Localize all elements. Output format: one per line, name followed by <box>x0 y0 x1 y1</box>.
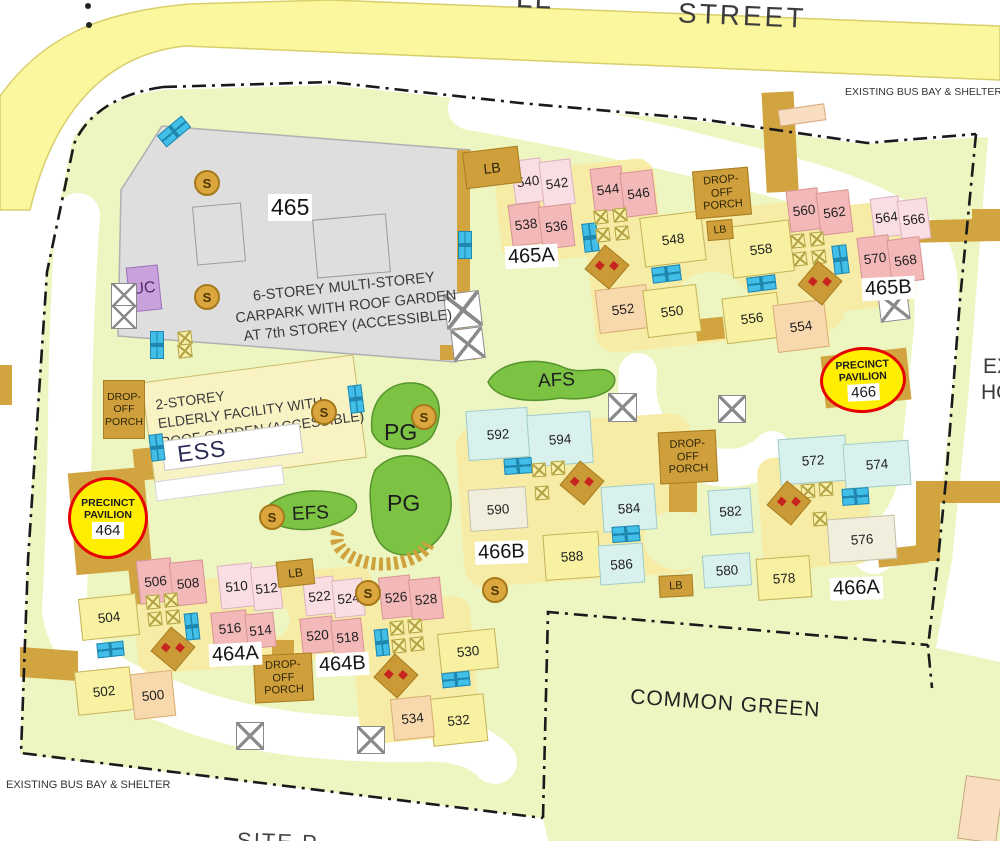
afs-label: AFS <box>537 369 575 393</box>
crossing-marker <box>236 722 264 750</box>
survey-dot <box>86 22 92 28</box>
letterbox-466b: LB <box>658 574 693 598</box>
site-plan-title-fragment: SITE P <box>237 828 320 841</box>
stair-box <box>595 227 611 243</box>
survey-dot <box>85 3 91 9</box>
stair-box <box>409 636 424 651</box>
stair-box <box>389 620 404 635</box>
lift-lobby <box>503 457 532 475</box>
block-554: 554 <box>772 299 829 353</box>
existing-housing-fragment-1: EX <box>983 355 1000 379</box>
pavilion-464-number: 464 <box>92 522 123 539</box>
stair-box <box>145 594 160 609</box>
stair-box <box>819 482 834 497</box>
block-588: 588 <box>542 531 601 581</box>
letterbox-464a: LB <box>276 558 316 588</box>
stair-box <box>614 225 630 241</box>
cluster-label-464b: 464B <box>315 652 369 678</box>
block-578: 578 <box>756 555 813 601</box>
cluster-label-464a: 464A <box>208 642 262 668</box>
stair-box <box>593 209 609 225</box>
lift-lobby <box>150 331 164 359</box>
block-576: 576 <box>827 515 898 564</box>
block-542: 542 <box>538 158 575 208</box>
street-name-fragment: LL <box>515 0 554 17</box>
block-590: 590 <box>468 486 529 532</box>
stair-box <box>535 486 550 501</box>
cluster-label-465a: 465A <box>504 244 558 270</box>
s-marker: S <box>194 170 220 196</box>
lift-lobby <box>374 628 391 656</box>
block-582: 582 <box>707 488 753 536</box>
block-528: 528 <box>408 576 444 621</box>
drop-off-porch-464: DROP-OFFPORCH <box>103 380 145 439</box>
s-marker: S <box>259 504 285 530</box>
lift-lobby <box>96 641 124 659</box>
stair-box <box>163 592 178 607</box>
block-562: 562 <box>816 189 854 236</box>
block-580: 580 <box>702 552 752 588</box>
existing-housing-fragment-2: HO <box>981 381 1000 405</box>
stair-box <box>165 609 180 624</box>
cluster-label-466b: 466B <box>475 540 528 565</box>
efs-label: EFS <box>291 502 329 526</box>
cluster-label-465: 465 <box>268 194 312 221</box>
block-574: 574 <box>843 440 912 489</box>
block-502: 502 <box>74 666 134 716</box>
pavilion-466-number: 466 <box>848 383 880 402</box>
lift-lobby <box>441 671 470 689</box>
stair-box <box>407 618 422 633</box>
stair-box <box>177 343 193 359</box>
block-572: 572 <box>777 435 848 486</box>
pg-label-lower: PG <box>387 490 420 517</box>
block-586: 586 <box>598 542 646 585</box>
lift-lobby <box>184 612 201 640</box>
block-558: 558 <box>727 219 795 278</box>
lift-lobby <box>611 525 640 543</box>
street-name: STREET <box>677 0 807 35</box>
crossing-marker <box>357 726 385 754</box>
s-marker: S <box>482 577 508 603</box>
pg-label-upper: PG <box>384 419 417 446</box>
block-592: 592 <box>465 407 530 461</box>
block-594: 594 <box>526 411 593 467</box>
lift-lobby <box>458 231 472 259</box>
crossing-marker <box>718 395 746 423</box>
stair-box <box>792 251 808 267</box>
crossing-marker <box>608 393 637 422</box>
lift-lobby <box>841 487 869 506</box>
crossing-marker <box>111 305 137 329</box>
cluster-label-465b: 465B <box>861 276 915 302</box>
s-marker: S <box>311 399 337 425</box>
block-566: 566 <box>897 197 932 241</box>
stair-box <box>809 231 825 247</box>
block-530: 530 <box>437 628 499 674</box>
letterbox-548: LB <box>706 219 734 241</box>
block-500: 500 <box>130 670 177 720</box>
block-532: 532 <box>429 693 489 746</box>
stair-box <box>813 512 828 527</box>
block-534: 534 <box>390 695 435 741</box>
stair-box <box>551 461 566 476</box>
s-marker: S <box>355 580 381 606</box>
block-504: 504 <box>78 593 140 641</box>
site-plan-canvas: 2-STOREY ELDERLY FACILITY WITH ROOF GARD… <box>0 0 1000 841</box>
bus-bay-note-top: EXISTING BUS BAY & SHELTER <box>845 86 1000 98</box>
crossing-marker <box>111 283 137 307</box>
block-518: 518 <box>330 617 365 656</box>
drop-off-porch-466: DROP-OFFPORCH <box>658 430 719 485</box>
stair-box <box>147 611 162 626</box>
crossing-marker <box>450 326 486 362</box>
s-marker: S <box>194 284 220 310</box>
cluster-label-466a: 466A <box>830 576 883 601</box>
stair-box <box>391 638 406 653</box>
letterbox-465a: LB <box>462 146 522 190</box>
block-550: 550 <box>642 284 701 338</box>
drop-off-porch-465a: DROP-OFFPORCH <box>692 167 752 220</box>
stair-box <box>532 463 547 478</box>
stair-box <box>612 207 628 223</box>
precinct-pavilion-464: PRECINCTPAVILION 464 <box>68 477 148 559</box>
stair-box <box>790 233 806 249</box>
bus-bay-note-bottom: EXISTING BUS BAY & SHELTER <box>6 779 170 791</box>
